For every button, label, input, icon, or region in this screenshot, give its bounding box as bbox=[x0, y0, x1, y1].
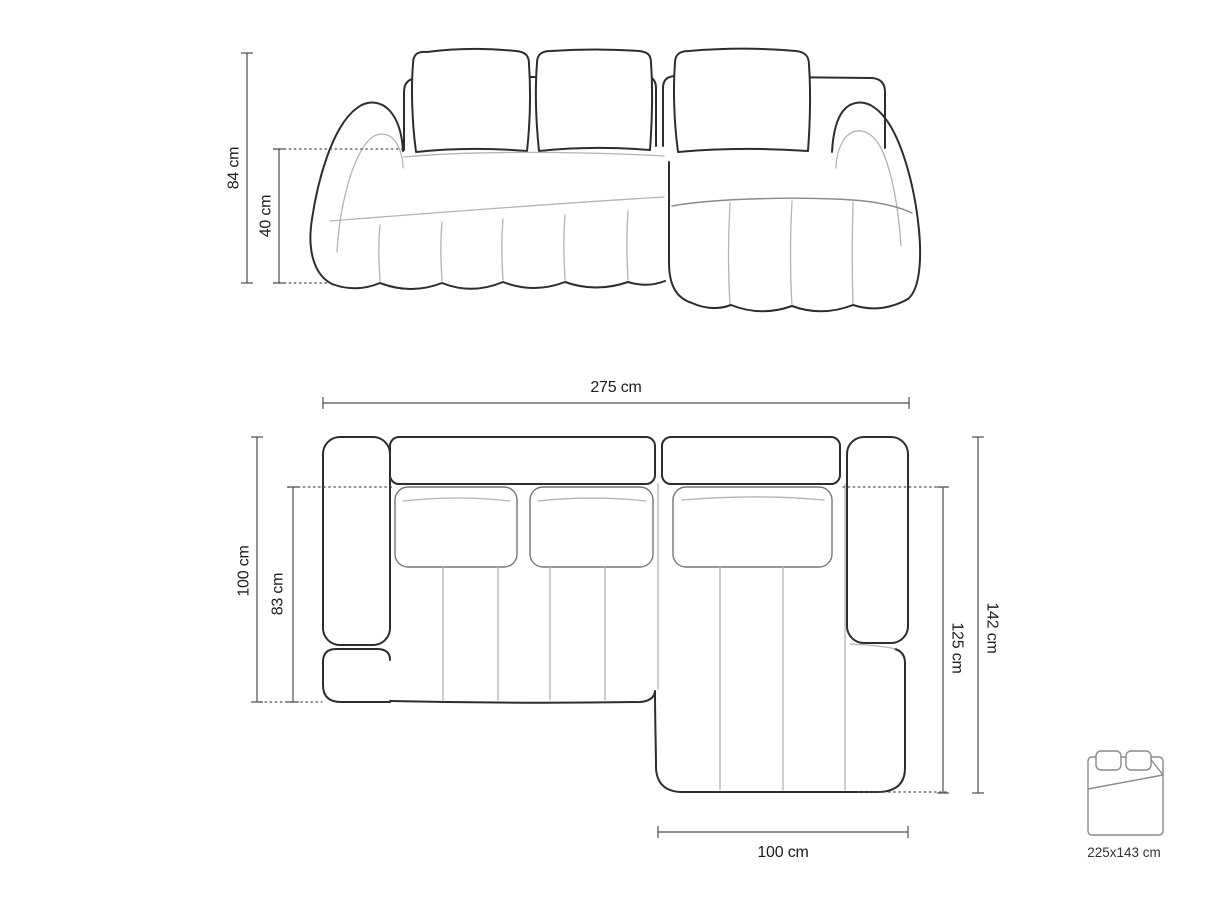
sleeping-area-size-label: 225x143 cm bbox=[1087, 845, 1161, 860]
bed-duvet-line bbox=[1088, 775, 1163, 789]
seat-depth-dimension: 83 cm bbox=[270, 487, 299, 702]
top-right-armrest-bottom-seam bbox=[850, 644, 895, 649]
front-seat-top-seam bbox=[404, 152, 664, 157]
top-seat-and-chaise-outline bbox=[390, 649, 905, 792]
chaise-depth-dimension: 125 cm bbox=[937, 487, 965, 793]
chaise-depth-dimension-label: 125 cm bbox=[948, 622, 965, 673]
front-view-dimensions: 84 cm 40 cm bbox=[226, 53, 402, 283]
chaise-total-depth-dimension: 142 cm bbox=[972, 437, 1000, 793]
top-left-front-corner bbox=[323, 649, 390, 702]
chaise-width-dimension: 100 cm bbox=[658, 826, 908, 861]
bed-pillow-left-icon bbox=[1096, 751, 1121, 770]
total-width-dimension: 275 cm bbox=[323, 379, 909, 409]
front-seat-channel-seams bbox=[379, 201, 853, 306]
front-seat-height-dimension: 40 cm bbox=[258, 149, 285, 283]
total-width-dimension-label: 275 cm bbox=[590, 379, 641, 396]
back-pillow-right bbox=[674, 49, 810, 152]
top-right-armrest bbox=[847, 437, 908, 643]
front-left-armrest bbox=[310, 103, 403, 284]
total-depth-dimension-label: 100 cm bbox=[236, 545, 253, 596]
top-left-armrest bbox=[323, 437, 390, 645]
top-seat-cushions bbox=[395, 487, 832, 567]
front-right-armrest-seam bbox=[836, 131, 901, 246]
seat-cushion-left bbox=[395, 487, 517, 567]
sofa-top-view-drawing bbox=[323, 437, 908, 792]
front-seat-bottom bbox=[332, 281, 665, 289]
total-depth-dimension: 100 cm bbox=[236, 437, 263, 702]
top-backrest-left bbox=[390, 437, 655, 484]
top-backrest-right bbox=[662, 437, 840, 484]
chaise-width-dimension-label: 100 cm bbox=[757, 844, 808, 861]
sleeping-function-icon: 225x143 cm bbox=[1087, 751, 1163, 860]
front-right-armrest bbox=[832, 103, 920, 299]
front-height-dimension: 84 cm bbox=[226, 53, 253, 283]
diagram-svg: 84 cm 40 cm bbox=[0, 0, 1214, 911]
front-chaise-bottom bbox=[669, 162, 908, 311]
chaise-total-depth-dimension-label: 142 cm bbox=[983, 602, 1000, 653]
sofa-dimensions-diagram: 84 cm 40 cm bbox=[0, 0, 1214, 911]
top-view-extension-lines bbox=[260, 487, 947, 792]
back-pillow-center bbox=[536, 50, 652, 152]
front-seat-height-dimension-label: 40 cm bbox=[258, 195, 275, 238]
seat-cushion-center bbox=[530, 487, 653, 567]
front-left-armrest-seam bbox=[337, 134, 403, 252]
top-channel-seams bbox=[443, 484, 845, 790]
front-seat-crease bbox=[330, 197, 664, 221]
back-pillow-left bbox=[412, 49, 530, 152]
bed-pillow-right-icon bbox=[1126, 751, 1151, 770]
front-height-dimension-label: 84 cm bbox=[226, 147, 243, 190]
top-view-dimensions: 275 cm 100 cm 83 cm 125 cm 142 cm bbox=[236, 379, 1001, 861]
sofa-front-view-drawing bbox=[310, 49, 920, 312]
seat-depth-dimension-label: 83 cm bbox=[270, 573, 287, 616]
